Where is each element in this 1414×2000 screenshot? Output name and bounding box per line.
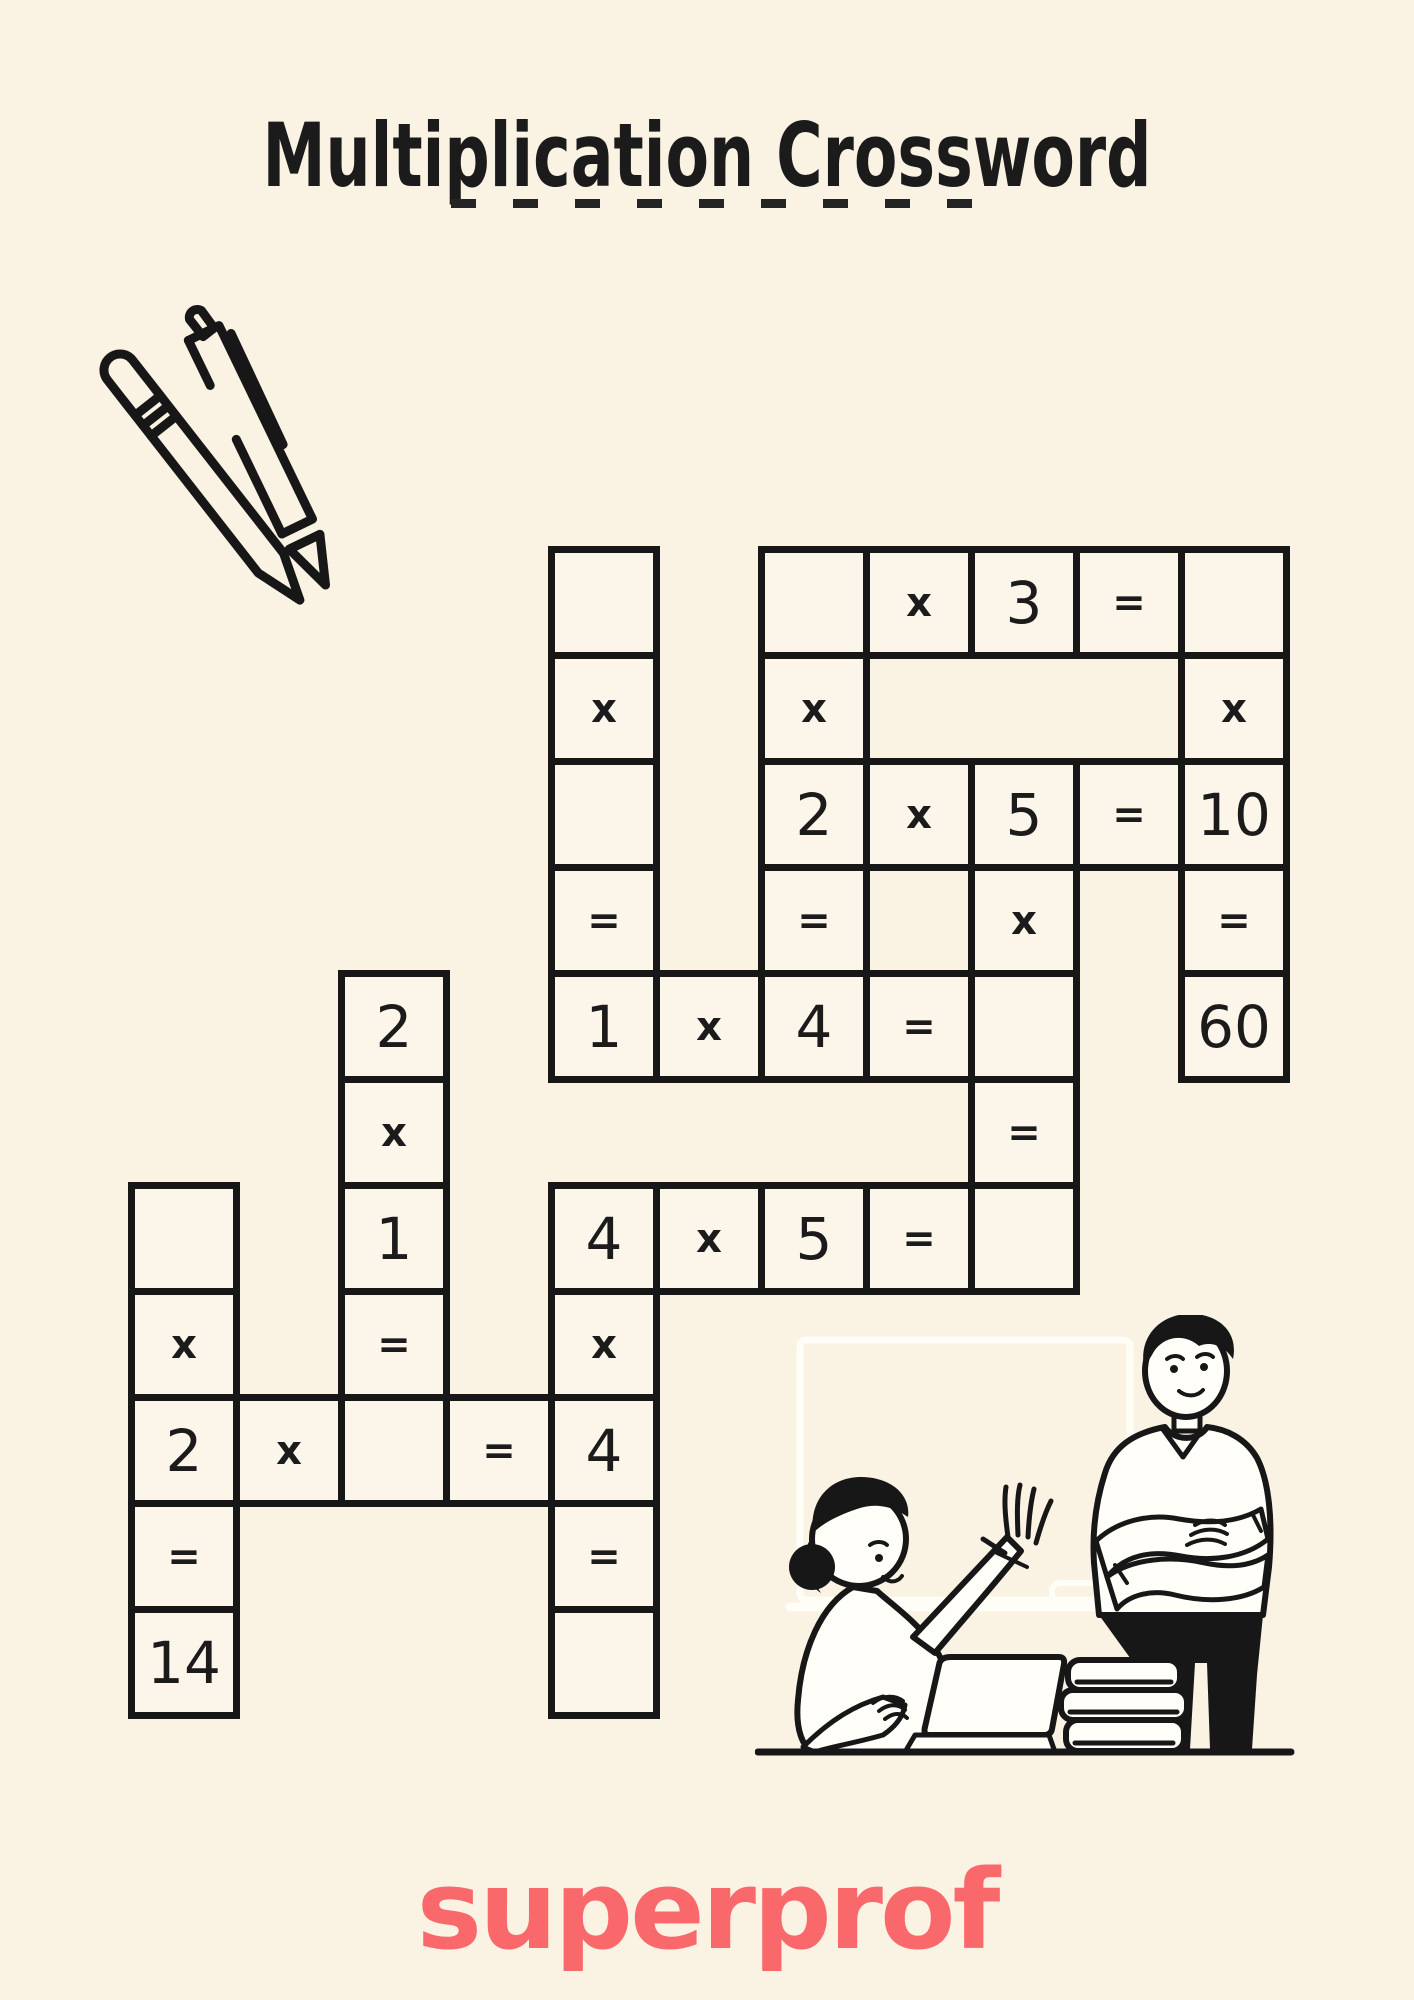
page-title: Multiplication Crossword	[262, 104, 1151, 207]
grid-cell: =	[758, 864, 870, 977]
grid-cell: 4	[548, 1182, 660, 1295]
title-underline-decoration	[451, 199, 972, 208]
grid-cell: =	[128, 1500, 240, 1613]
grid-cell: 2	[128, 1394, 240, 1507]
grid-cell: x	[863, 758, 975, 871]
grid-cell	[758, 546, 870, 659]
grid-cell: 10	[1178, 758, 1290, 871]
grid-cell: 3	[968, 546, 1080, 659]
grid-cell	[1178, 546, 1290, 659]
grid-cell: x	[1178, 652, 1290, 765]
grid-cell: 4	[758, 970, 870, 1083]
grid-cell: x	[863, 546, 975, 659]
grid-cell: x	[338, 1076, 450, 1189]
grid-cell: 1	[338, 1182, 450, 1295]
grid-cell: =	[1178, 864, 1290, 977]
grid-cell: x	[548, 652, 660, 765]
grid-cell: x	[128, 1288, 240, 1401]
books-icon	[1061, 1660, 1187, 1751]
grid-cell: =	[548, 1500, 660, 1613]
grid-cell: x	[233, 1394, 345, 1507]
classroom-illustration	[755, 1315, 1295, 1760]
grid-cell: 2	[758, 758, 870, 871]
grid-cell: 5	[758, 1182, 870, 1295]
grid-cell: 5	[968, 758, 1080, 871]
grid-cell: x	[758, 652, 870, 765]
grid-cell: 14	[128, 1606, 240, 1719]
grid-cell	[548, 758, 660, 871]
grid-cell: =	[443, 1394, 555, 1507]
grid-cell	[548, 1606, 660, 1719]
grid-cell: 2	[338, 970, 450, 1083]
grid-cell	[968, 970, 1080, 1083]
grid-cell	[338, 1394, 450, 1507]
grid-cell: 1	[548, 970, 660, 1083]
grid-cell: =	[863, 1182, 975, 1295]
grid-cell: =	[1073, 758, 1185, 871]
grid-cell	[968, 1182, 1080, 1295]
superprof-logo: superprof	[417, 1846, 998, 1974]
grid-cell: =	[1073, 546, 1185, 659]
grid-cell: x	[653, 1182, 765, 1295]
grid-cell: x	[968, 864, 1080, 977]
grid-cell: x	[653, 970, 765, 1083]
grid-cell: =	[968, 1076, 1080, 1189]
grid-cell: =	[863, 970, 975, 1083]
grid-cell	[128, 1182, 240, 1295]
grid-cell: =	[548, 864, 660, 977]
worksheet-page: Multiplication Crossword x3=xxx2x5=10==x…	[0, 0, 1414, 2000]
grid-cell: x	[548, 1288, 660, 1401]
pencils-icon	[85, 300, 355, 615]
grid-cell	[548, 546, 660, 659]
grid-cell: 60	[1178, 970, 1290, 1083]
grid-cell: 4	[548, 1394, 660, 1507]
grid-cell: =	[338, 1288, 450, 1401]
